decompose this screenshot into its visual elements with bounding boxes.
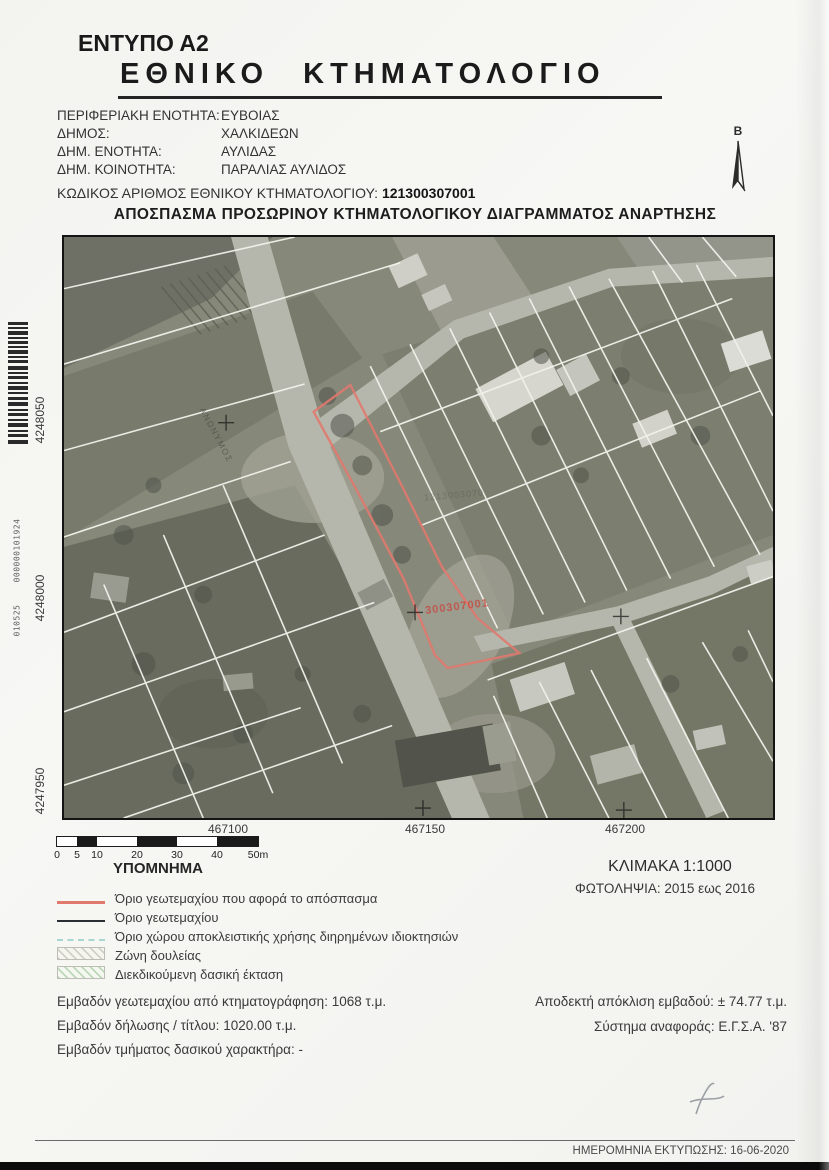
map-title: ΑΠΟΣΠΑΣΜΑ ΠΡΟΣΩΡΙΝΟΥ ΚΤΗΜΑΤΟΛΟΓΙΚΟΥ ΔΙΑΓ… [85,206,745,224]
admin-row-municipality: ΔΗΜΟΣ:ΧΑΛΚΙΔΕΩΝ [57,126,299,141]
admin-label: ΔΗΜ. ΚΟΙΝΟΤΗΤΑ: [57,162,221,177]
admin-label: ΔΗΜ. ΕΝΟΤΗΤΑ: [57,144,221,159]
x-axis-tick: 467100 [193,822,263,836]
aerial-photo [64,237,773,818]
scanned-cadastral-document: ΕΝΤΥΠΟ Α2 ΕΘΝΙΚΟ ΚΤΗΜΑΤΟΛΟΓΙΟ ΠΕΡΙΦΕΡΙΑΚ… [0,0,829,1170]
legend-label: Όριο γεωτεμαχίου [115,910,218,925]
kaek-label: ΚΩΔΙΚΟΣ ΑΡΙΘΜΟΣ ΕΘΝΙΚΟΥ ΚΤΗΜΑΤΟΛΟΓΙΟΥ: [57,185,378,201]
info-value: - [298,1042,303,1057]
admin-value: ΠΑΡΑΛΙΑΣ ΑΥΛΙΔΟΣ [221,162,346,177]
info-value: ± 74.77 τ.μ. [718,994,787,1009]
legend-label: Όριο χώρου αποκλειστικής χρήσης διηρημέν… [115,929,458,944]
info-value: 1020.00 τ.μ. [223,1018,296,1033]
admin-value: ΧΑΛΚΙΔΕΩΝ [221,126,299,141]
north-arrow-icon [722,137,754,195]
title-underline [118,96,662,99]
info-label: Σύστημα αναφοράς: [594,1019,715,1034]
legend-label: Ζώνη δουλείας [115,948,201,963]
legend-swatch-parcel-boundary [57,920,105,922]
bottom-scan-bar [0,1162,829,1170]
legend-label: Όριο γεωτεμαχίου που αφορά το απόσπασμα [115,891,377,906]
north-label: Β [722,124,754,138]
x-axis-tick: 467200 [590,822,660,836]
admin-row-regional-unit: ΠΕΡΙΦΕΡΙΑΚΗ ΕΝΟΤΗΤΑ:ΕΥΒΟΙΑΣ [57,108,280,123]
kaek-value: 121300307001 [382,185,475,201]
area-title-line: Εμβαδόν δήλωσης / τίτλου: 1020.00 τ.μ. [57,1018,296,1033]
map-frame [62,235,775,820]
legend-swatch-servitude-zone [57,947,105,960]
legend-swatch-claimed-forest [57,966,105,979]
area-forest-line: Εμβαδόν τμήματος δασικού χαρακτήρα: - [57,1042,303,1057]
legend-title: ΥΠΟΜΝΗΜΑ [113,860,203,877]
form-code: ΕΝΤΥΠΟ Α2 [78,30,209,57]
scale-bar [56,836,259,847]
info-value: Ε.Γ.Σ.Α. '87 [718,1019,787,1034]
kaek-line: ΚΩΔΙΚΟΣ ΑΡΙΘΜΟΣ ΕΘΝΙΚΟΥ ΚΤΗΜΑΤΟΛΟΓΙΟΥ: 1… [57,185,475,201]
barcode-number: 000000101924 [13,511,22,591]
photo-dates: ΦΩΤΟΛΗΨΙΑ: 2015 εως 2016 [545,881,785,896]
legend-label: Διεκδικούμενη δασική έκταση [115,967,283,982]
barcode [6,322,30,448]
y-axis-tick: 4248000 [33,558,47,638]
info-label: Εμβαδόν γεωτεμαχίου από κτηματογράφηση: [57,994,328,1009]
right-edge-shadow [795,0,829,1170]
admin-value: ΑΥΛΙΔΑΣ [221,144,276,159]
y-axis-tick: 4248050 [33,380,47,460]
pen-mark [686,1072,728,1120]
area-tolerance-line: Αποδεκτή απόκλιση εμβαδού: ± 74.77 τ.μ. [535,994,787,1009]
batch-number: 010525 [13,596,22,646]
y-axis-tick: 4247950 [33,751,47,831]
info-value: 1068 τ.μ. [332,994,386,1009]
legend-swatch-exclusive-use-boundary [57,939,105,941]
area-survey-line: Εμβαδόν γεωτεμαχίου από κτηματογράφηση: … [57,994,386,1009]
info-label: Αποδεκτή απόκλιση εμβαδού: [535,994,714,1009]
x-axis-tick: 467150 [390,822,460,836]
admin-value: ΕΥΒΟΙΑΣ [221,108,280,123]
reference-system-line: Σύστημα αναφοράς: Ε.Γ.Σ.Α. '87 [594,1019,787,1034]
scale-tick: 10 [82,849,112,861]
document-title: ΕΘΝΙΚΟ ΚΤΗΜΑΤΟΛΟΓΙΟ [120,58,606,91]
info-label: Εμβαδόν τμήματος δασικού χαρακτήρα: [57,1042,295,1057]
map-scale-text: ΚΛΙΜΑΚΑ 1:1000 [560,858,780,876]
scale-tick: 50m [243,849,273,861]
admin-label: ΔΗΜΟΣ: [57,126,221,141]
print-date: ΗΜΕΡΟΜΗΝΙΑ ΕΚΤΥΠΩΣΗΣ: 16-06-2020 [573,1145,789,1157]
legend-swatch-subject-boundary [57,901,105,904]
admin-label: ΠΕΡΙΦΕΡΙΑΚΗ ΕΝΟΤΗΤΑ: [57,108,221,123]
info-label: Εμβαδόν δήλωσης / τίτλου: [57,1018,219,1033]
footer-rule [35,1140,795,1141]
admin-row-community: ΔΗΜ. ΚΟΙΝΟΤΗΤΑ:ΠΑΡΑΛΙΑΣ ΑΥΛΙΔΟΣ [57,162,346,177]
scale-tick: 40 [202,849,232,861]
admin-row-municipal-unit: ΔΗΜ. ΕΝΟΤΗΤΑ:ΑΥΛΙΔΑΣ [57,144,276,159]
